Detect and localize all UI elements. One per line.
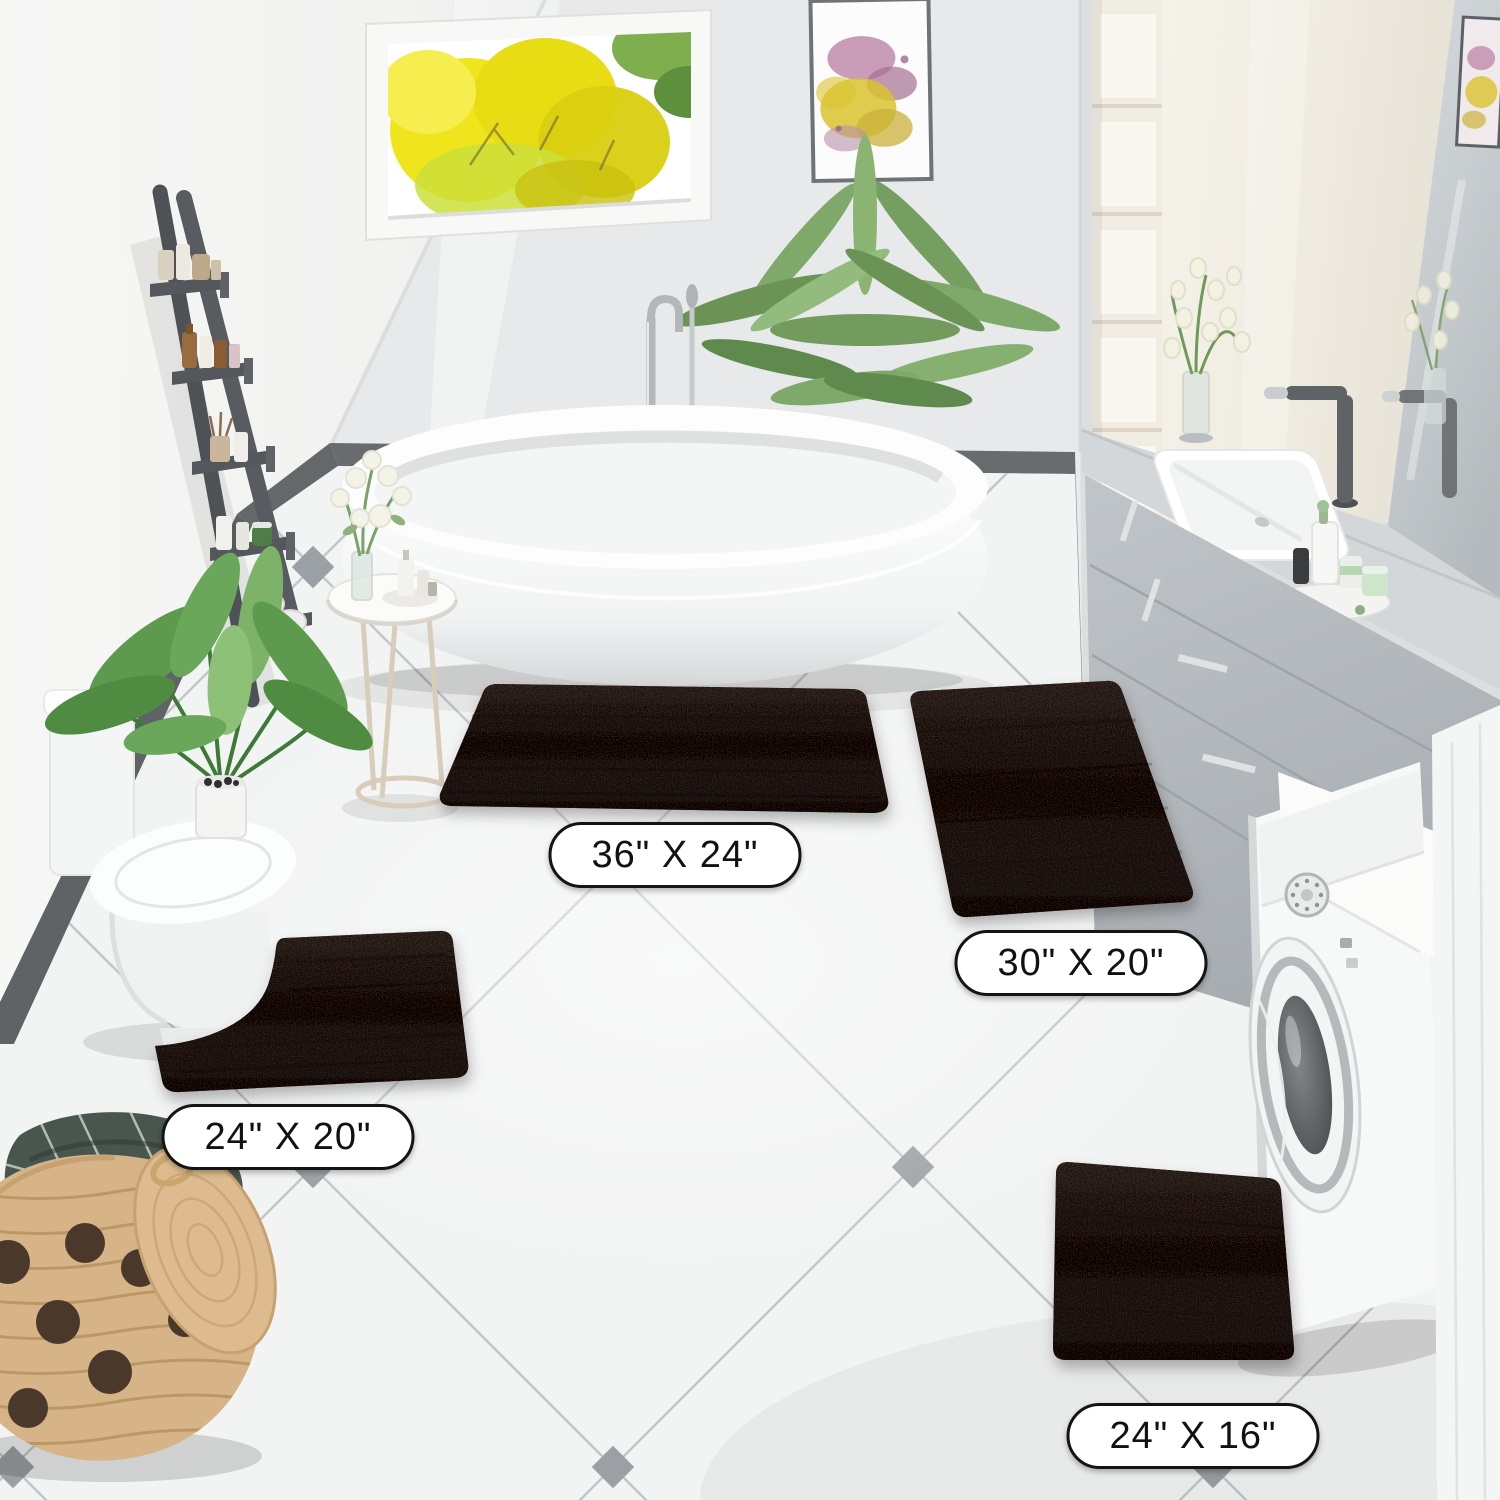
size-label-24x16: 24" X 16" [1067, 1403, 1320, 1469]
rug-36x24 [440, 684, 888, 813]
size-label-36x24: 36" X 24" [549, 822, 802, 888]
scene-svg [0, 0, 1500, 1500]
rug-24x16 [1053, 1162, 1294, 1360]
window [366, 10, 726, 240]
size-label-30x20: 30" X 20" [955, 930, 1208, 996]
side-cabinet [1432, 705, 1500, 1500]
mirror-art-reflection [1457, 17, 1500, 147]
washer-dial [1286, 874, 1328, 916]
size-label-24x20: 24" X 20" [162, 1104, 415, 1170]
bathroom-product-photo: 36" X 24" 30" X 20" 24" X 20" 24" X 16" [0, 0, 1500, 1500]
